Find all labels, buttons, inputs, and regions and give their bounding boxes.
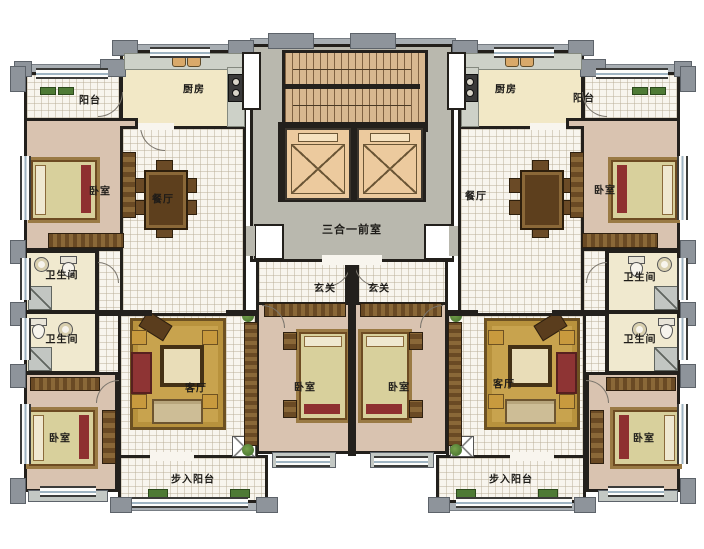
pillow	[35, 165, 46, 215]
plant-icon	[450, 444, 462, 456]
toilet-icon	[658, 318, 674, 338]
pier	[350, 33, 396, 49]
elevator-door	[298, 133, 338, 142]
elevator-left-cab	[285, 128, 351, 200]
toilet-bowl	[660, 324, 673, 339]
elevator-right-cab	[357, 128, 423, 200]
floor-plan: 阳台 厨房 卧室 餐厅 卫生间 卫生间 卧室 客厅 步入阳台 玄关 卧室 三合一…	[0, 0, 704, 549]
room-label-bedroom-top-right: 卧室	[594, 182, 616, 197]
tv-cabinet	[448, 322, 462, 446]
door-opening-walkin-right	[510, 452, 554, 461]
door-opening-entry	[322, 255, 382, 265]
planter-box	[58, 87, 74, 95]
bed	[611, 160, 677, 220]
window	[677, 258, 688, 300]
wall-stub	[446, 310, 478, 316]
wall-stub	[226, 310, 258, 316]
nightstand	[409, 332, 423, 350]
room-label-living-right: 客厅	[493, 376, 515, 391]
pier	[574, 497, 596, 513]
planter-box	[632, 87, 648, 95]
wardrobe	[48, 233, 124, 248]
room-label-living-left: 客厅	[185, 380, 207, 395]
dresser	[590, 410, 604, 464]
room-label-bedroom-bottom-right: 卧室	[633, 430, 655, 445]
burner-icon	[232, 78, 240, 86]
room-label-bedroom-center-left: 卧室	[294, 379, 316, 394]
sofa	[152, 399, 203, 424]
room-label-dining-right: 餐厅	[465, 188, 487, 203]
room-label-walkin-balcony-left: 步入阳台	[171, 471, 215, 486]
window	[20, 156, 31, 220]
window	[20, 258, 31, 300]
bed-throw	[79, 415, 89, 459]
room-label-kitchen-right: 厨房	[495, 81, 517, 96]
toilet-bowl	[32, 324, 45, 339]
door-opening-lobby-left	[246, 226, 255, 256]
pier	[680, 364, 696, 388]
room-label-entry-right: 玄关	[368, 280, 390, 295]
window	[677, 318, 688, 360]
window	[150, 47, 210, 58]
room-label-bath-right-lower: 卫生间	[624, 331, 657, 346]
room-label-bath-left-lower: 卫生间	[46, 331, 79, 346]
window	[456, 497, 572, 508]
bed-throw	[617, 165, 627, 213]
stair-landing-divider	[284, 84, 420, 89]
room-label-bath-right-upper: 卫生间	[624, 269, 657, 284]
nightstand	[409, 400, 423, 418]
wall-stub	[552, 310, 608, 316]
pier	[10, 478, 26, 504]
room-label-bedroom-bottom-left: 卧室	[49, 430, 71, 445]
window	[276, 456, 330, 467]
window	[20, 318, 31, 360]
planter-box	[40, 87, 56, 95]
door-opening-kitchen-left	[138, 123, 174, 130]
door-opening-lobby-right	[449, 226, 458, 256]
room-label-bath-left-upper: 卫生间	[46, 267, 79, 282]
armchair	[559, 394, 575, 409]
window	[36, 68, 108, 79]
burner-icon	[232, 89, 240, 97]
dresser	[122, 152, 136, 218]
window	[40, 486, 96, 497]
bed-throw	[619, 415, 629, 459]
armchair	[202, 330, 218, 345]
wardrobe	[582, 233, 658, 248]
burner-icon	[466, 78, 474, 86]
appliance-niche	[242, 52, 261, 110]
window	[132, 497, 248, 508]
appliance-niche	[447, 52, 466, 110]
lobby-closet-left	[254, 224, 284, 260]
room-label-entry-left: 玄关	[314, 280, 336, 295]
shower-icon	[654, 347, 678, 371]
stair-guideline	[293, 69, 411, 70]
bed	[299, 332, 347, 420]
pillow	[664, 415, 675, 461]
window	[374, 456, 428, 467]
pier	[680, 66, 696, 92]
bed-throw	[304, 404, 340, 414]
pillow	[33, 415, 44, 461]
plant-icon	[242, 444, 254, 456]
shower-icon	[28, 347, 52, 371]
staircase	[282, 50, 428, 132]
room-label-bedroom-top-left: 卧室	[89, 183, 111, 198]
pier	[10, 364, 26, 388]
elevator-x-mark	[363, 144, 417, 194]
room-label-walkin-balcony-right: 步入阳台	[489, 471, 533, 486]
dresser	[570, 152, 584, 218]
wardrobe	[30, 377, 100, 391]
door-opening-walkin-left	[150, 452, 194, 461]
armchair	[131, 330, 147, 345]
armchair	[559, 330, 575, 345]
room-label-balcony-top-right: 阳台	[573, 90, 595, 105]
toilet-icon	[30, 318, 46, 338]
nightstand	[283, 332, 297, 350]
wardrobe	[606, 377, 676, 391]
stair-guideline	[293, 105, 411, 106]
pier	[680, 478, 696, 504]
window	[677, 156, 688, 220]
wall-stub	[96, 310, 152, 316]
dining-table	[520, 170, 564, 230]
room-label-dining-left: 餐厅	[152, 191, 174, 206]
room-label-balcony-top-left: 阳台	[79, 92, 101, 107]
nightstand	[283, 400, 297, 418]
window	[677, 404, 688, 464]
pier	[256, 497, 278, 513]
window	[596, 68, 668, 79]
pier	[428, 497, 450, 513]
window	[494, 47, 554, 58]
room-label-kitchen-left: 厨房	[183, 81, 205, 96]
pillow	[662, 165, 673, 215]
pier	[268, 33, 314, 49]
tv-cabinet	[244, 322, 258, 446]
sofa	[505, 399, 556, 424]
shower-icon	[654, 286, 678, 310]
planter-box	[650, 87, 666, 95]
armchair	[131, 394, 147, 409]
armchair	[202, 394, 218, 409]
shower-icon	[28, 286, 52, 310]
bed	[31, 160, 97, 220]
pillow	[304, 336, 342, 347]
red-couch	[556, 352, 577, 394]
window	[20, 404, 31, 464]
bed-throw	[366, 404, 402, 414]
room-label-core-lobby: 三合一前室	[322, 221, 382, 237]
party-wall-center	[348, 256, 356, 456]
room-label-bedroom-center-right: 卧室	[388, 379, 410, 394]
door-opening-kitchen-right	[530, 123, 566, 130]
armchair	[488, 394, 504, 409]
sink-icon	[657, 257, 672, 272]
elevator-x-mark	[291, 144, 345, 194]
armchair	[488, 330, 504, 345]
burner-icon	[466, 89, 474, 97]
dresser	[102, 410, 116, 464]
pier	[10, 66, 26, 92]
window	[608, 486, 664, 497]
bed	[361, 332, 409, 420]
elevator-door	[370, 133, 410, 142]
red-couch	[131, 352, 152, 394]
pier	[110, 497, 132, 513]
pillow	[366, 336, 404, 347]
